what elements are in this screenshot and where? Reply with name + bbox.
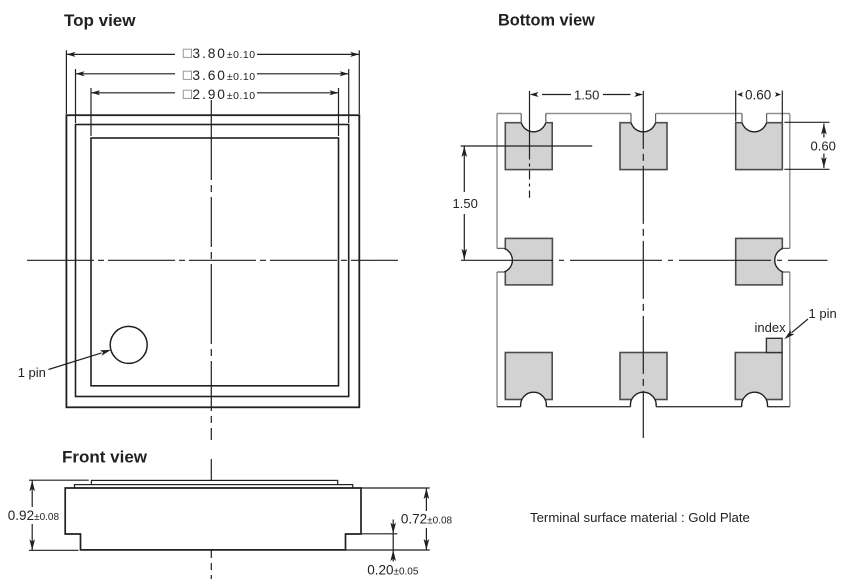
svg-text:index: index: [755, 320, 787, 335]
svg-text:Top view: Top view: [64, 11, 136, 30]
svg-text:Front view: Front view: [62, 447, 148, 466]
svg-text:1.50: 1.50: [453, 196, 478, 211]
svg-text:1.50: 1.50: [574, 87, 599, 102]
svg-text:Terminal surface material : Go: Terminal surface material : Gold Plate: [530, 510, 750, 525]
svg-text:0.60: 0.60: [811, 139, 836, 154]
svg-text:0.60: 0.60: [745, 87, 771, 102]
svg-text:2.90±0.10: 2.90±0.10: [192, 87, 255, 102]
svg-text:3.60±0.10: 3.60±0.10: [192, 68, 255, 83]
svg-text:1 pin: 1 pin: [18, 365, 46, 380]
svg-text:1 pin: 1 pin: [809, 306, 837, 321]
svg-text:3.80±0.10: 3.80±0.10: [192, 46, 255, 61]
svg-text:Bottom view: Bottom view: [498, 11, 595, 29]
